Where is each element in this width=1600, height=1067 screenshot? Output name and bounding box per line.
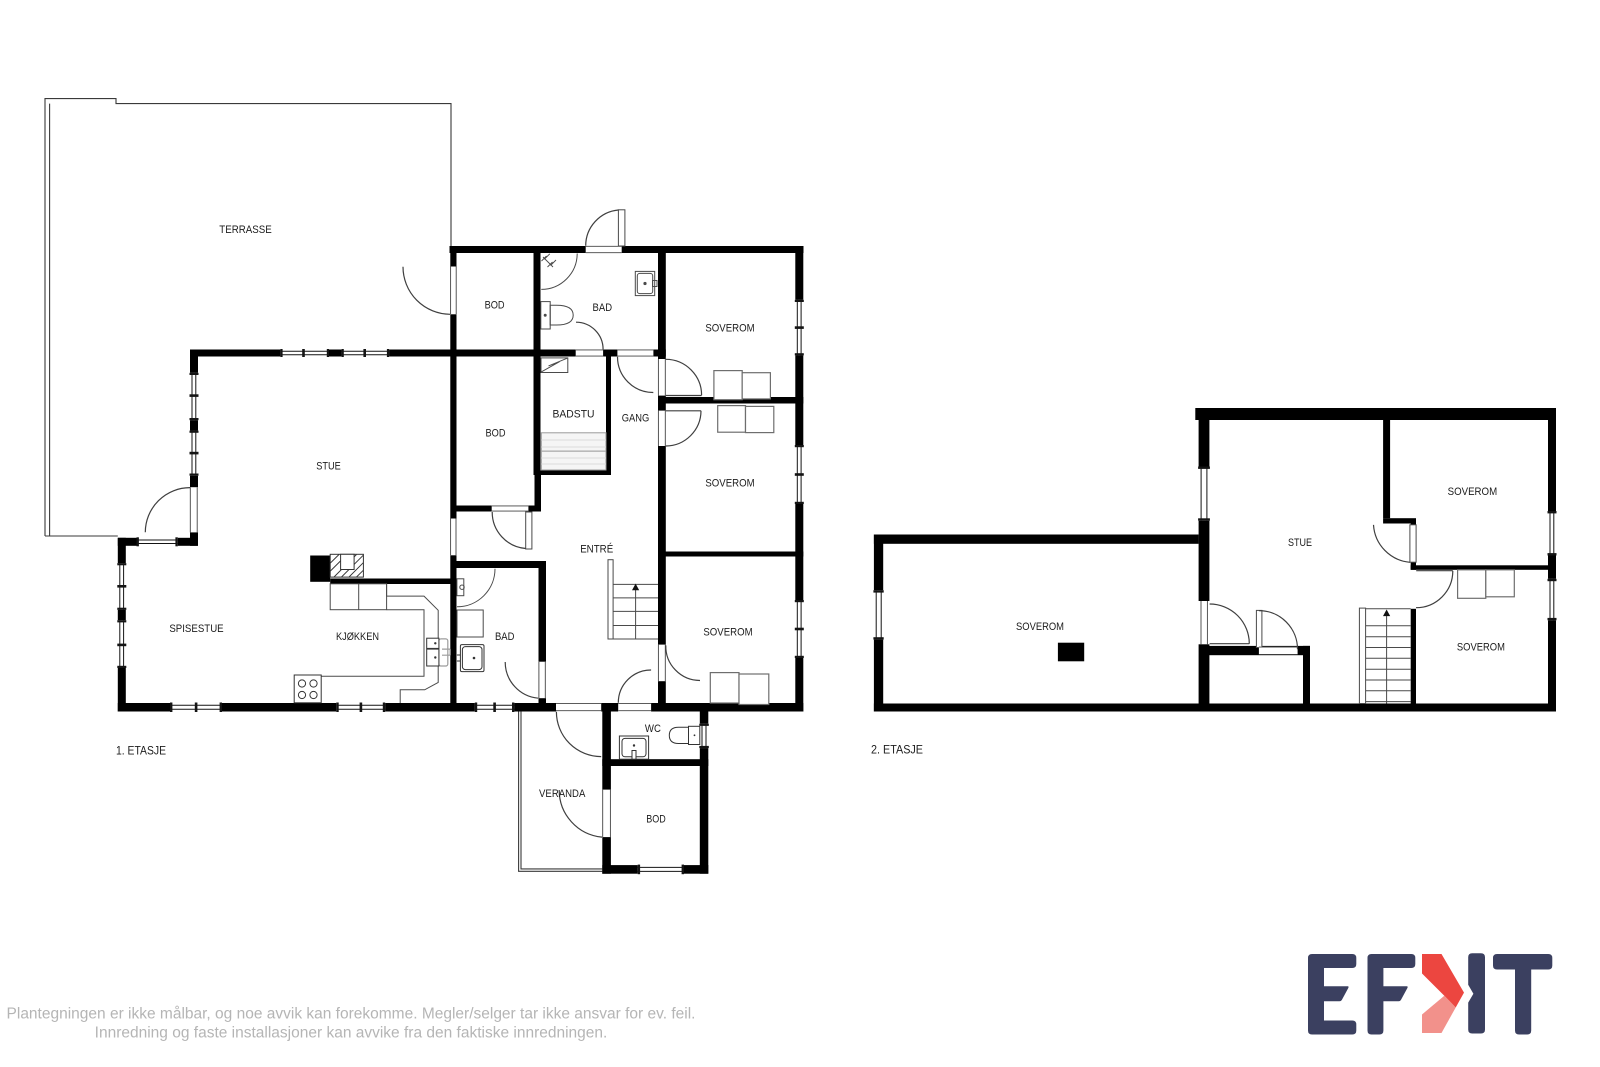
svg-text:SOVEROM: SOVEROM xyxy=(1457,642,1505,654)
svg-text:2. ETASJE: 2. ETASJE xyxy=(871,745,923,757)
svg-text:KJØKKEN: KJØKKEN xyxy=(336,631,379,643)
svg-text:Plantegningen er ikke målbar,: Plantegningen er ikke målbar, og noe avv… xyxy=(7,1006,696,1023)
svg-text:1. ETASJE: 1. ETASJE xyxy=(116,746,166,758)
svg-text:SOVEROM: SOVEROM xyxy=(705,323,754,335)
svg-text:SOVEROM: SOVEROM xyxy=(703,626,752,638)
svg-text:ENTRÉ: ENTRÉ xyxy=(580,542,613,555)
svg-text:BADSTU: BADSTU xyxy=(553,409,595,421)
svg-text:BAD: BAD xyxy=(495,631,515,643)
svg-text:BOD: BOD xyxy=(485,300,505,312)
svg-text:STUE: STUE xyxy=(1288,537,1312,549)
svg-text:VERANDA: VERANDA xyxy=(539,788,586,800)
svg-text:BAD: BAD xyxy=(593,302,613,314)
svg-text:BOD: BOD xyxy=(646,814,666,826)
svg-text:GANG: GANG xyxy=(622,412,650,424)
svg-text:Innredning og faste installasj: Innredning og faste installasjoner kan a… xyxy=(95,1025,608,1042)
svg-text:SPISESTUE: SPISESTUE xyxy=(169,623,223,635)
svg-text:BOD: BOD xyxy=(486,428,506,440)
svg-text:SOVEROM: SOVEROM xyxy=(1016,621,1064,633)
svg-text:WC: WC xyxy=(645,723,661,735)
svg-text:SOVEROM: SOVEROM xyxy=(1448,486,1498,498)
svg-text:SOVEROM: SOVEROM xyxy=(705,478,754,490)
svg-text:STUE: STUE xyxy=(316,461,341,473)
svg-text:TERRASSE: TERRASSE xyxy=(219,224,272,236)
